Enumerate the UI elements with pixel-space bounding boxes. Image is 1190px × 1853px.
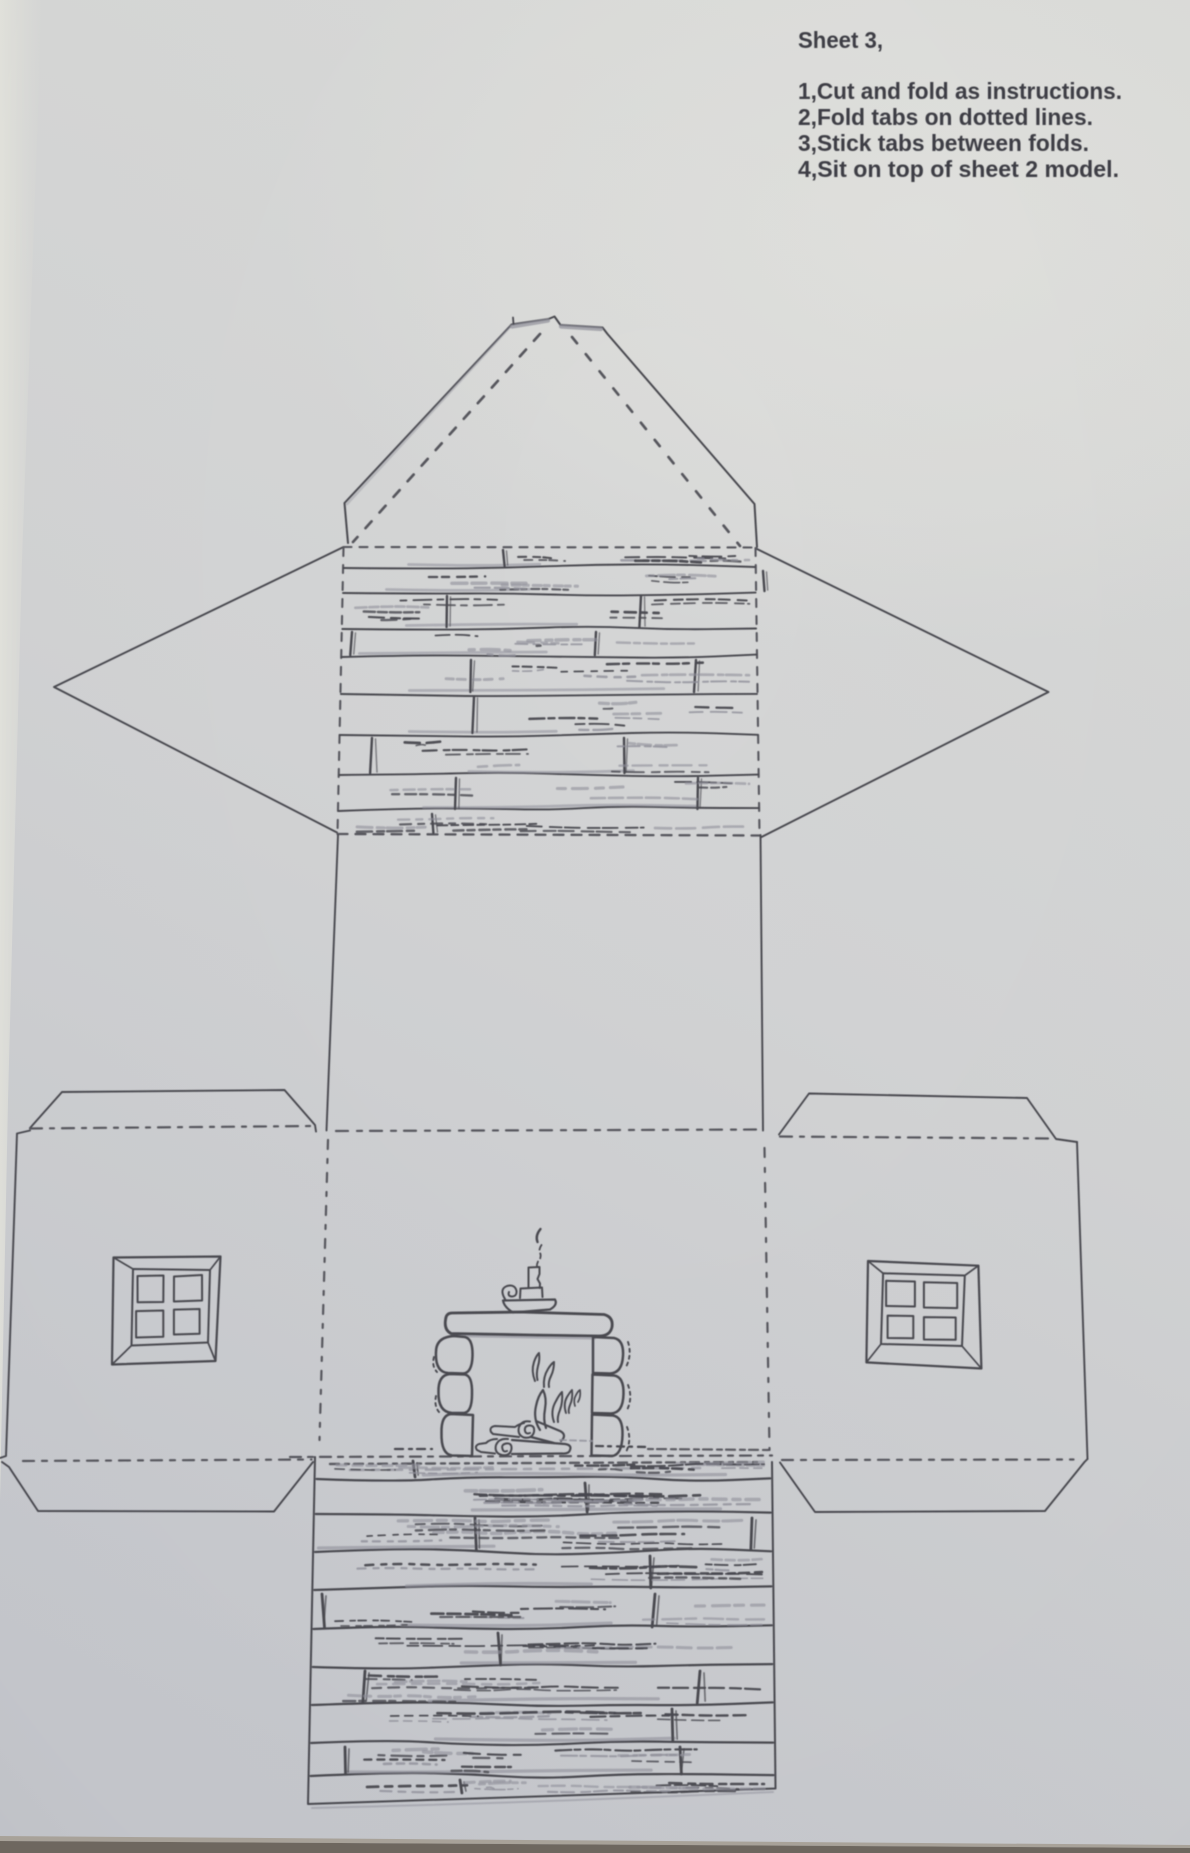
svg-text:3,Stick tabs between folds.: 3,Stick tabs between folds. xyxy=(798,130,1089,156)
svg-text:1,Cut and fold as instructions: 1,Cut and fold as instructions. xyxy=(798,78,1122,104)
svg-text:2,Fold tabs on dotted lines.: 2,Fold tabs on dotted lines. xyxy=(798,104,1093,130)
svg-text:4,Sit on top of sheet 2 model.: 4,Sit on top of sheet 2 model. xyxy=(798,156,1119,182)
svg-text:Sheet 3,: Sheet 3, xyxy=(798,27,883,53)
